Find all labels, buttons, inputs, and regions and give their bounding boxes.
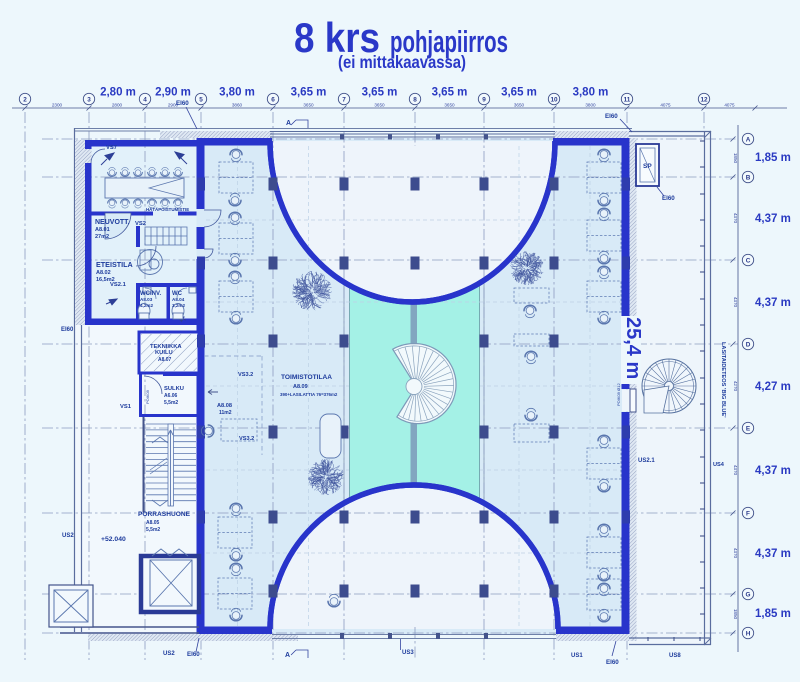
svg-text:A8.01: A8.01 bbox=[95, 227, 110, 233]
svg-text:HÄTÄPOISTUMISTIE: HÄTÄPOISTUMISTIE bbox=[146, 207, 189, 212]
svg-text:(ei mittakaavassa): (ei mittakaavassa) bbox=[338, 52, 466, 72]
svg-text:EI60: EI60 bbox=[662, 195, 675, 202]
svg-text:2800: 2800 bbox=[112, 103, 123, 108]
svg-text:VS2.1: VS2.1 bbox=[110, 282, 127, 288]
svg-text:2,80 m: 2,80 m bbox=[100, 87, 136, 99]
svg-text:VS7: VS7 bbox=[106, 145, 117, 151]
svg-text:EI60: EI60 bbox=[605, 113, 618, 120]
svg-text:3860: 3860 bbox=[232, 103, 243, 108]
svg-text:VS3.2: VS3.2 bbox=[238, 372, 253, 378]
svg-text:27m2: 27m2 bbox=[95, 234, 109, 240]
svg-text:3650: 3650 bbox=[303, 103, 314, 108]
svg-text:3,80 m: 3,80 m bbox=[219, 87, 255, 99]
svg-text:LASITAIDETEOS ’BIG BLUE’: LASITAIDETEOS ’BIG BLUE’ bbox=[720, 342, 726, 418]
svg-text:12: 12 bbox=[700, 96, 708, 103]
svg-text:8: 8 bbox=[413, 96, 417, 103]
svg-text:25,4 m: 25,4 m bbox=[622, 317, 644, 379]
svg-text:H: H bbox=[746, 630, 751, 637]
svg-text:5: 5 bbox=[199, 96, 203, 103]
svg-text:3,65 m: 3,65 m bbox=[291, 87, 327, 99]
svg-text:TOIMISTOTILAA: TOIMISTOTILAA bbox=[281, 374, 332, 381]
svg-text:A8.03: A8.03 bbox=[140, 297, 153, 302]
svg-text:+52.040: +52.040 bbox=[101, 536, 126, 543]
svg-text:A8.09: A8.09 bbox=[293, 384, 308, 390]
svg-text:A8.02: A8.02 bbox=[96, 270, 111, 276]
svg-text:A8.05: A8.05 bbox=[146, 520, 160, 526]
svg-text:A: A bbox=[286, 120, 291, 127]
svg-text:3800: 3800 bbox=[585, 103, 596, 108]
svg-text:EI60: EI60 bbox=[187, 651, 200, 658]
svg-text:D: D bbox=[746, 341, 751, 348]
svg-text:4,27 m: 4,27 m bbox=[755, 381, 791, 393]
svg-text:4370: 4370 bbox=[733, 213, 738, 224]
svg-text:ETEISTILA: ETEISTILA bbox=[96, 260, 133, 269]
svg-text:5,5m2: 5,5m2 bbox=[146, 527, 160, 533]
svg-text:4,37 m: 4,37 m bbox=[755, 213, 791, 225]
svg-text:US4: US4 bbox=[713, 462, 725, 468]
svg-text:6: 6 bbox=[271, 96, 275, 103]
svg-text:3,65 m: 3,65 m bbox=[432, 87, 468, 99]
svg-text:SP: SP bbox=[643, 163, 652, 170]
svg-text:VS2: VS2 bbox=[135, 221, 146, 227]
svg-text:11: 11 bbox=[624, 96, 631, 103]
svg-text:A: A bbox=[285, 652, 290, 659]
svg-text:G: G bbox=[746, 591, 751, 598]
svg-text:4370: 4370 bbox=[733, 465, 738, 476]
svg-text:PORRASHUONE: PORRASHUONE bbox=[138, 511, 191, 518]
svg-text:2300: 2300 bbox=[52, 103, 63, 108]
svg-text:1,85 m: 1,85 m bbox=[755, 608, 791, 620]
svg-text:4370: 4370 bbox=[733, 548, 738, 559]
svg-text:US3: US3 bbox=[402, 650, 414, 656]
svg-text:US2: US2 bbox=[62, 533, 74, 539]
svg-text:F: F bbox=[746, 510, 750, 517]
svg-text:A8.07: A8.07 bbox=[158, 357, 172, 363]
svg-text:B: B bbox=[746, 174, 751, 181]
svg-text:4,37 m: 4,37 m bbox=[755, 548, 791, 560]
svg-text:4270: 4270 bbox=[733, 381, 738, 392]
svg-text:4075: 4075 bbox=[724, 103, 735, 108]
svg-text:POIK09: POIK09 bbox=[145, 389, 150, 404]
svg-text:KUILU: KUILU bbox=[155, 350, 173, 356]
svg-text:7: 7 bbox=[342, 96, 346, 103]
svg-text:1850: 1850 bbox=[733, 153, 738, 164]
svg-text:1850: 1850 bbox=[733, 609, 738, 620]
svg-text:4370: 4370 bbox=[733, 297, 738, 308]
svg-text:US8: US8 bbox=[669, 653, 681, 659]
svg-text:10: 10 bbox=[550, 96, 558, 103]
svg-text:4,37 m: 4,37 m bbox=[755, 297, 791, 309]
svg-text:3,65 m: 3,65 m bbox=[501, 87, 537, 99]
svg-text:SULKU: SULKU bbox=[164, 386, 184, 392]
svg-text:US1: US1 bbox=[571, 653, 583, 659]
svg-text:3650: 3650 bbox=[514, 103, 525, 108]
svg-text:3,2m2: 3,2m2 bbox=[172, 303, 185, 308]
svg-text:4,2m2: 4,2m2 bbox=[140, 303, 153, 308]
svg-text:1,85 m: 1,85 m bbox=[755, 152, 791, 164]
svg-text:VS1: VS1 bbox=[120, 404, 132, 410]
svg-text:2,90 m: 2,90 m bbox=[155, 87, 191, 99]
svg-text:4,37 m: 4,37 m bbox=[755, 465, 791, 477]
svg-text:E: E bbox=[746, 425, 751, 432]
svg-text:A: A bbox=[746, 136, 751, 143]
svg-text:NEUVOTT.: NEUVOTT. bbox=[95, 219, 130, 226]
svg-text:A6.06: A6.06 bbox=[164, 393, 178, 399]
svg-text:3,65 m: 3,65 m bbox=[362, 87, 398, 99]
svg-text:EI60: EI60 bbox=[61, 327, 74, 333]
svg-text:A8.08: A8.08 bbox=[217, 403, 232, 409]
svg-text:4075: 4075 bbox=[660, 103, 671, 108]
svg-text:5,5m2: 5,5m2 bbox=[164, 400, 178, 406]
svg-text:A8.04: A8.04 bbox=[172, 297, 185, 302]
svg-text:US2: US2 bbox=[163, 651, 175, 657]
svg-text:2: 2 bbox=[23, 96, 27, 103]
svg-text:4: 4 bbox=[143, 96, 147, 103]
svg-text:C: C bbox=[746, 257, 751, 264]
svg-text:3650: 3650 bbox=[374, 103, 385, 108]
svg-text:EI60: EI60 bbox=[606, 659, 619, 666]
svg-text:3,80 m: 3,80 m bbox=[573, 87, 609, 99]
svg-text:POIK09 Ø12: POIK09 Ø12 bbox=[616, 383, 621, 406]
svg-text:390+LASILATTIA 76=376m2: 390+LASILATTIA 76=376m2 bbox=[280, 392, 338, 397]
svg-text:EI60: EI60 bbox=[176, 100, 189, 107]
svg-text:US2.1: US2.1 bbox=[638, 458, 655, 464]
svg-text:11m2: 11m2 bbox=[219, 410, 232, 416]
svg-text:9: 9 bbox=[482, 96, 486, 103]
svg-text:3650: 3650 bbox=[444, 103, 455, 108]
svg-text:VS3.2: VS3.2 bbox=[239, 436, 254, 442]
svg-text:3: 3 bbox=[87, 96, 91, 103]
